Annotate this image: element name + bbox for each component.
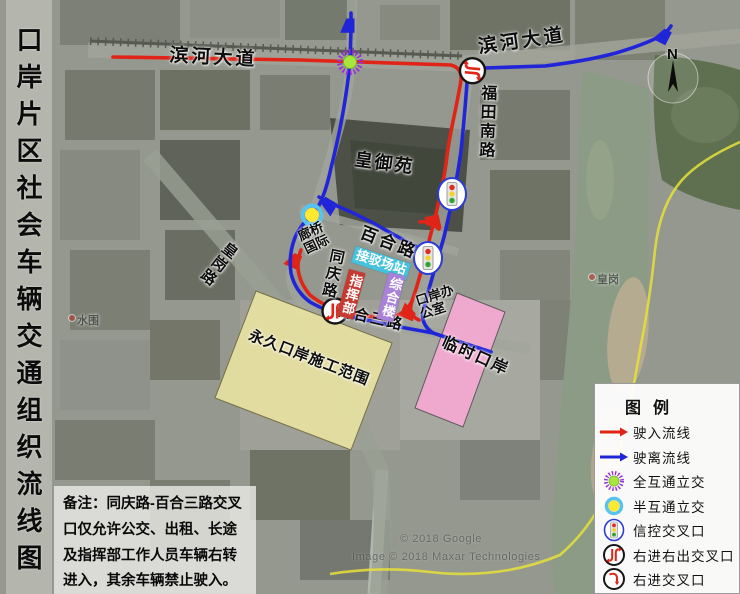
legend-row: 右进右出交叉口: [595, 543, 739, 568]
map-attribution-line1: © 2018 Google: [400, 533, 482, 545]
right-in-icon: [595, 567, 633, 591]
full-interchange-icon: [595, 469, 633, 493]
poi-marker-icon: [588, 273, 596, 281]
map-attribution-line2: Image © 2018 Maxar Technologies: [352, 551, 541, 563]
legend-row: 全互通立交 驶离流线: [595, 445, 739, 470]
poi-huanggang: 皇岗: [597, 270, 619, 288]
page-title: 口岸片区社会车辆交通组织流线图: [15, 26, 41, 581]
half-interchange-icon: [595, 494, 633, 518]
right-in-right-out-icon: [595, 543, 633, 567]
red-arrow-icon: [595, 426, 633, 438]
full-interchange-icon: [334, 46, 366, 83]
legend-row: 右进交叉口: [595, 567, 739, 592]
legend-row: 驶入流线: [595, 420, 739, 445]
traffic-organization-map: N 滨河大道 滨河大道 福田南路 皇御苑 百合路 同庆路 廊桥国际 皇岗路 百合…: [0, 0, 740, 594]
right-in-right-out-icon: [451, 54, 488, 87]
signal-intersection-icon: [595, 518, 633, 542]
north-arrow: N: [645, 38, 701, 115]
note-text: 备注：同庆路-百合三路交叉口仅允许公交、出租、长途及指挥部工作人员车辆右转进入，…: [63, 496, 242, 589]
legend: 图 例 驶入流线 全互通立交 驶离流线 全互通立交 半互通立交: [594, 383, 740, 594]
north-label: N: [667, 46, 678, 63]
legend-row: 信控交叉口: [595, 518, 739, 543]
legend-row: 半互通立交: [595, 494, 739, 519]
poi-shuiwei: 水围: [77, 311, 99, 329]
blue-arrow-icon: [595, 451, 633, 463]
legend-title: 图 例: [625, 394, 739, 418]
signal-intersection-icon: [436, 176, 468, 217]
note-box: 备注：同庆路-百合三路交叉口仅允许公交、出租、长途及指挥部工作人员车辆右转进入，…: [54, 486, 256, 594]
poi-marker-icon: [68, 314, 76, 322]
road-label-futian-south: 福田南路: [475, 84, 495, 161]
legend-row: 全互通立交: [595, 469, 739, 494]
